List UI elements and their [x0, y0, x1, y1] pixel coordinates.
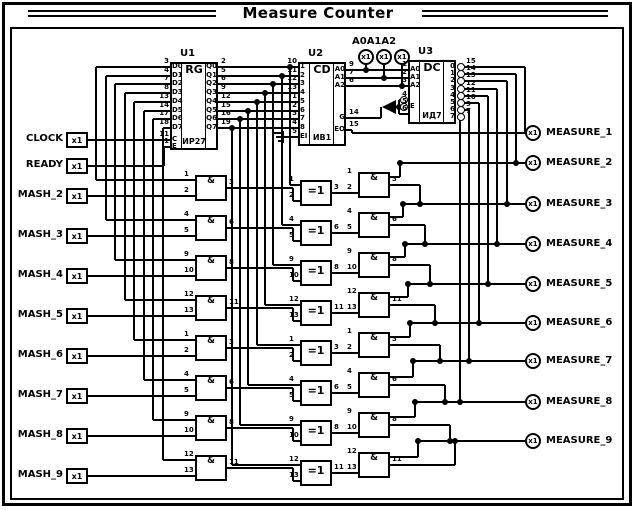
wire	[524, 67, 526, 133]
pin-number: 1	[347, 328, 352, 336]
pin-number: 13	[347, 464, 357, 472]
pin-number: 13	[347, 304, 357, 312]
pin-number: 3	[229, 179, 234, 187]
wire	[290, 184, 300, 186]
pin-name: 4	[300, 89, 305, 97]
pin-number: 8	[229, 419, 234, 427]
pin-number: 5	[283, 128, 297, 136]
wire	[293, 200, 300, 202]
pin-name: E	[172, 143, 177, 151]
page-title: Measure Counter	[0, 4, 636, 22]
output-label: MEASURE_1	[546, 127, 612, 138]
wire	[88, 475, 195, 477]
wire	[399, 113, 408, 115]
ic-ref: U1	[180, 48, 195, 59]
top-port-group-label: A0A1A2	[352, 36, 396, 47]
wire	[496, 89, 498, 244]
inversion-bubble-icon	[457, 77, 465, 85]
input-label: MASH_4	[0, 269, 63, 280]
pin-number: 5	[289, 232, 294, 240]
gate-label: &	[195, 257, 227, 267]
pin-number: 12	[221, 93, 231, 101]
wire	[332, 352, 358, 354]
pin-number: 4	[184, 371, 189, 379]
wire	[256, 102, 258, 345]
pin-number: 1	[283, 93, 297, 101]
pin-name: D7	[172, 124, 183, 132]
pin-name: D3	[172, 89, 183, 97]
wire	[403, 203, 525, 205]
wire	[352, 132, 525, 134]
gate-label: &	[195, 217, 227, 227]
pin-number: 3	[229, 339, 234, 347]
wire	[390, 384, 445, 386]
wire	[227, 387, 293, 389]
wire	[227, 307, 293, 309]
output-terminal[interactable]: x1	[525, 236, 541, 252]
wire	[133, 102, 135, 340]
pin-number: 2	[184, 347, 189, 355]
pin-name: 7	[443, 113, 455, 121]
wire	[232, 464, 300, 466]
ground-icon	[274, 132, 282, 134]
wire	[88, 195, 195, 197]
wire	[105, 76, 107, 220]
wire	[227, 187, 293, 189]
pin-number: 11	[392, 456, 402, 464]
pin-number: 11	[334, 464, 344, 472]
pin-number: 3	[393, 77, 407, 85]
wire	[390, 464, 455, 466]
pin-number: 12	[289, 296, 299, 304]
wire	[163, 127, 170, 129]
pin-number: 13	[155, 93, 169, 101]
gate-label: &	[358, 294, 390, 304]
wire	[248, 384, 300, 386]
wire	[283, 136, 298, 138]
gate-label: &	[358, 174, 390, 184]
output-label: MEASURE_3	[546, 198, 612, 209]
wire	[88, 355, 195, 357]
pin-number: 2	[221, 58, 226, 66]
wire	[240, 424, 300, 426]
wire	[332, 392, 358, 394]
wire	[418, 440, 525, 442]
gate-label: &	[358, 214, 390, 224]
ground-icon	[278, 140, 282, 142]
pin-number: 15	[349, 121, 359, 129]
pin-number: 9	[347, 408, 352, 416]
pin-name: 3	[300, 80, 305, 88]
pin-number: 12	[289, 456, 299, 464]
output-label: MEASURE_9	[546, 435, 612, 446]
pin-name: Q0	[205, 63, 217, 71]
pin-name: 8	[300, 124, 305, 132]
pin-number: 4	[289, 216, 294, 224]
junction-dot	[363, 67, 369, 73]
input-label: MASH_6	[0, 349, 63, 360]
gate-label: &	[358, 414, 390, 424]
wire	[515, 74, 517, 163]
wire	[88, 235, 195, 237]
wire	[332, 312, 358, 314]
pin-number: 10	[347, 424, 357, 432]
schematic-canvas: Measure Counter A0A1A2x1x1x1CLOCKx1READY…	[0, 0, 636, 510]
input-label: MASH_3	[0, 229, 63, 240]
ic-part-label: ИР27	[170, 138, 218, 147]
ic-ref: U3	[418, 46, 433, 57]
wire	[106, 219, 195, 221]
pin-name: EO	[333, 126, 345, 134]
pin-number: 8	[334, 424, 339, 432]
pin-name: D2	[172, 80, 183, 88]
output-terminal[interactable]: x1	[525, 125, 541, 141]
gate-label: =1	[300, 305, 332, 317]
pin-number: 13	[283, 84, 297, 92]
pin-number: 10	[184, 427, 194, 435]
wire	[163, 459, 195, 461]
wire	[506, 81, 508, 204]
pin-number: 1	[184, 331, 189, 339]
pin-number: 5	[347, 224, 352, 232]
pin-number: 6	[334, 224, 339, 232]
wire	[293, 480, 300, 482]
junction-dot	[381, 75, 387, 81]
pin-number: 13	[184, 467, 194, 475]
output-label: MEASURE_8	[546, 396, 612, 407]
pin-number: 11	[229, 459, 239, 467]
output-terminal[interactable]: x1	[525, 315, 541, 331]
pin-number: 3	[334, 184, 339, 192]
pin-number: 5	[184, 227, 189, 235]
ic-ref: U2	[308, 48, 323, 59]
pin-number: 6	[393, 105, 407, 113]
pin-number: 5	[347, 384, 352, 392]
wire	[400, 162, 525, 164]
wire	[265, 304, 300, 306]
input-terminal[interactable]: x1	[66, 388, 88, 404]
pin-name: D0	[172, 63, 183, 71]
input-terminal[interactable]: x1	[66, 132, 88, 148]
pin-number: 13	[289, 312, 299, 320]
input-terminal[interactable]: x1	[66, 348, 88, 364]
wire	[293, 360, 300, 362]
pin-name: EI	[300, 133, 307, 141]
pin-number: 12	[283, 75, 297, 83]
pin-number: 3	[392, 176, 397, 184]
pin-number: 10	[289, 272, 299, 280]
gate-label: &	[195, 337, 227, 347]
pin-number: 16	[221, 110, 231, 118]
input-terminal[interactable]: x1	[66, 188, 88, 204]
wire	[332, 192, 358, 194]
pin-number: 4	[184, 211, 189, 219]
pin-name: A2	[333, 82, 345, 90]
output-terminal[interactable]: x1	[525, 196, 541, 212]
pin-number: 2	[347, 184, 352, 192]
pin-number: 10	[347, 264, 357, 272]
wire	[293, 400, 300, 402]
pin-number: 8	[392, 256, 397, 264]
pin-number: 9	[347, 248, 352, 256]
pin-number: 1	[289, 176, 294, 184]
pin-number: 6	[334, 384, 339, 392]
wire	[282, 224, 300, 226]
wire	[88, 395, 195, 397]
gate-label: =1	[300, 385, 332, 397]
wire	[415, 401, 525, 403]
pin-number: 11	[334, 304, 344, 312]
gate-label: &	[195, 417, 227, 427]
wire	[227, 427, 293, 429]
wire	[293, 320, 300, 322]
gate-label: &	[195, 297, 227, 307]
pin-number: 7	[155, 75, 169, 83]
gate-label: =1	[300, 425, 332, 437]
wire	[227, 227, 293, 229]
pin-number: 9	[184, 251, 189, 259]
pin-number: 13	[289, 472, 299, 480]
pin-number: 6	[392, 376, 397, 384]
pin-number: 10	[184, 267, 194, 275]
input-terminal[interactable]: x1	[66, 308, 88, 324]
wire	[332, 432, 358, 434]
pin-number: 9	[184, 411, 189, 419]
input-terminal[interactable]: x1	[66, 268, 88, 284]
wire	[293, 240, 300, 242]
pin-number: 12	[184, 451, 194, 459]
pin-number: 4	[347, 368, 352, 376]
output-terminal[interactable]: x1	[525, 433, 541, 449]
pin-number: 10	[289, 432, 299, 440]
wire	[227, 467, 293, 469]
output-label: MEASURE_6	[546, 317, 612, 328]
wire	[413, 360, 525, 362]
gate-label: &	[358, 454, 390, 464]
top-terminal[interactable]: x1	[376, 49, 392, 65]
pin-number: 5	[184, 387, 189, 395]
pin-number: 6	[229, 219, 234, 227]
pin-number: 19	[221, 119, 231, 127]
pin-number: 18	[155, 119, 169, 127]
wire	[332, 272, 358, 274]
output-terminal[interactable]: x1	[525, 155, 541, 171]
wire	[351, 130, 353, 133]
wire	[273, 264, 300, 266]
input-label: READY	[0, 159, 63, 170]
wire	[390, 304, 435, 306]
wire	[390, 224, 425, 226]
wire	[478, 103, 480, 323]
wire	[143, 111, 145, 380]
wire	[88, 315, 195, 317]
input-label: MASH_8	[0, 429, 63, 440]
pin-number: 1	[289, 336, 294, 344]
pin-number: 1	[347, 168, 352, 176]
wire	[95, 67, 97, 180]
wire	[153, 419, 195, 421]
output-label: MEASURE_7	[546, 355, 612, 366]
wire	[114, 84, 116, 260]
pin-number: 2	[184, 187, 189, 195]
pin-number: 3	[155, 58, 169, 66]
wire	[454, 441, 456, 465]
wire	[264, 93, 266, 305]
pin-number: 8	[392, 416, 397, 424]
pin-number: 8	[334, 264, 339, 272]
pin-name: D4	[172, 98, 183, 106]
wire	[408, 283, 525, 285]
input-terminal[interactable]: x1	[66, 228, 88, 244]
input-terminal[interactable]: x1	[66, 158, 88, 174]
pin-number: 2	[289, 352, 294, 360]
pin-number: 3	[334, 344, 339, 352]
wire	[293, 440, 300, 442]
pin-number: 12	[184, 291, 194, 299]
pin-number: 10	[283, 58, 297, 66]
pin-name: E	[410, 103, 415, 111]
wire	[390, 264, 430, 266]
pin-number: 14	[349, 109, 359, 117]
pin-name: D6	[172, 115, 183, 123]
gate-label: =1	[300, 345, 332, 357]
gate-label: &	[195, 177, 227, 187]
output-terminal[interactable]: x1	[525, 394, 541, 410]
gate-label: =1	[300, 185, 332, 197]
input-terminal[interactable]: x1	[66, 468, 88, 484]
output-label: MEASURE_4	[546, 238, 612, 249]
output-label: MEASURE_5	[546, 278, 612, 289]
pin-number: 3	[283, 110, 297, 118]
pin-number: 3	[392, 336, 397, 344]
input-label: MASH_9	[0, 469, 63, 480]
wire	[487, 96, 489, 284]
pin-number: 7	[466, 108, 471, 116]
pin-number: 4	[289, 376, 294, 384]
top-terminal[interactable]: x1	[358, 49, 374, 65]
ground-icon	[276, 136, 282, 138]
input-label: MASH_2	[0, 189, 63, 200]
pin-number: 2	[347, 344, 352, 352]
pin-name: Q7	[205, 124, 217, 132]
pin-name: 5	[300, 98, 305, 106]
pin-name: Q4	[205, 98, 217, 106]
wire	[96, 179, 195, 181]
pin-number: 9	[289, 256, 294, 264]
pin-name: G	[333, 114, 345, 122]
pin-name: Q6	[205, 115, 217, 123]
wire	[390, 424, 450, 426]
pin-name: Q3	[205, 89, 217, 97]
wire	[390, 184, 420, 186]
gate-label: =1	[300, 265, 332, 277]
pin-number: 4	[347, 208, 352, 216]
pin-number: 12	[347, 288, 357, 296]
pin-number: 11	[392, 296, 402, 304]
pin-name: 7	[300, 115, 305, 123]
wire	[410, 322, 525, 324]
wire	[88, 275, 195, 277]
pin-number: 1	[184, 171, 189, 179]
pin-name: Q2	[205, 80, 217, 88]
gate-label: &	[358, 254, 390, 264]
inversion-bubble-icon	[457, 113, 465, 121]
pin-name: 1	[300, 63, 305, 71]
wire	[390, 344, 440, 346]
wire	[88, 165, 164, 167]
pin-number: 6	[221, 75, 226, 83]
wire	[247, 111, 249, 385]
pin-number: 4	[283, 119, 297, 127]
wire	[405, 243, 525, 245]
wire	[88, 435, 195, 437]
input-label: MASH_5	[0, 309, 63, 320]
pin-number: 9	[221, 84, 226, 92]
gate-label: =1	[300, 225, 332, 237]
gate-label: &	[358, 334, 390, 344]
output-terminal[interactable]: x1	[525, 276, 541, 292]
pin-number: 6	[349, 77, 354, 85]
gate-label: =1	[300, 465, 332, 477]
wire	[125, 299, 195, 301]
wire	[227, 347, 293, 349]
pin-number: 13	[184, 307, 194, 315]
wire	[332, 472, 358, 474]
gate-label: &	[358, 374, 390, 384]
wire	[293, 280, 300, 282]
wire	[239, 119, 241, 425]
pin-number: 12	[347, 448, 357, 456]
pin-number: 6	[392, 216, 397, 224]
pin-number: 8	[229, 259, 234, 267]
pin-number: 11	[229, 299, 239, 307]
wire	[115, 259, 195, 261]
pin-number: 9	[289, 416, 294, 424]
input-label: CLOCK	[0, 133, 63, 144]
wire	[163, 147, 165, 166]
output-terminal[interactable]: x1	[525, 353, 541, 369]
pin-number: 1	[155, 138, 169, 146]
pin-number: 6	[229, 379, 234, 387]
wire	[257, 344, 300, 346]
wire	[162, 128, 164, 460]
output-label: MEASURE_2	[546, 157, 612, 168]
pin-number: 17	[155, 110, 169, 118]
pin-number: 2	[289, 192, 294, 200]
pin-number: 8	[155, 84, 169, 92]
wire	[346, 117, 381, 119]
input-terminal[interactable]: x1	[66, 428, 88, 444]
gate-label: &	[195, 377, 227, 387]
pin-number: 5	[289, 392, 294, 400]
gate-label: &	[195, 457, 227, 467]
input-label: MASH_7	[0, 389, 63, 400]
wire	[332, 232, 358, 234]
pin-name: A2	[410, 82, 420, 90]
wire	[227, 267, 293, 269]
